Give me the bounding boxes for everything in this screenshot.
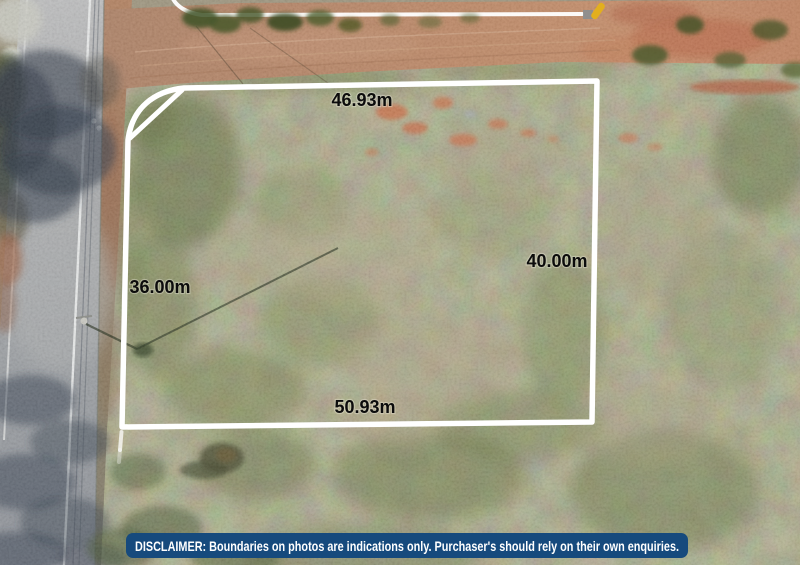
aerial-photo-container: 46.93m 40.00m 36.00m 50.93m DISCLAIMER: …: [0, 0, 800, 565]
boundary-tail: [120, 432, 122, 450]
measurement-label-bottom: 50.93m: [334, 397, 395, 417]
disclaimer-text: DISCLAIMER: Boundaries on photos are ind…: [135, 538, 679, 554]
measurement-label-right: 40.00m: [526, 251, 587, 271]
measurement-label-left: 36.00m: [129, 277, 190, 297]
measurement-label-top: 46.93m: [331, 90, 392, 110]
disclaimer-bar: DISCLAIMER: Boundaries on photos are ind…: [126, 533, 688, 558]
aerial-photo: 46.93m 40.00m 36.00m 50.93m DISCLAIMER: …: [0, 0, 800, 565]
